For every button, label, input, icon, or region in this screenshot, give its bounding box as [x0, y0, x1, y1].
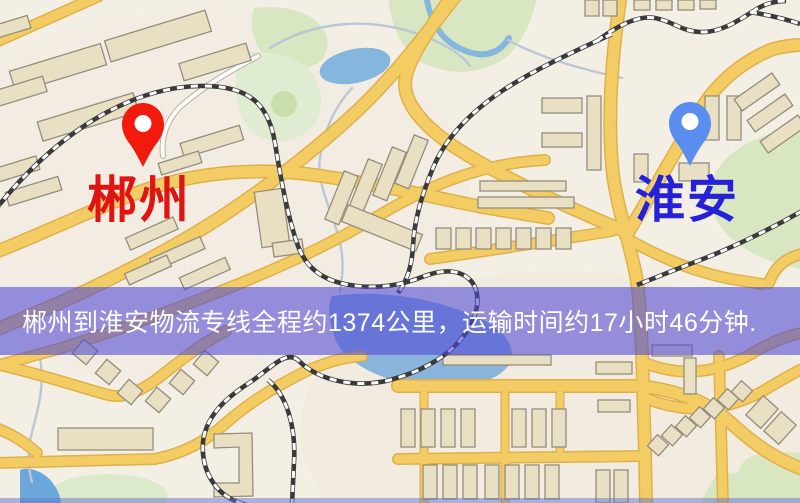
origin-marker[interactable] — [120, 102, 166, 168]
image-bottom-edge — [0, 498, 800, 503]
map-canvas[interactable] — [0, 0, 800, 503]
origin-label: 郴州 — [79, 174, 199, 226]
destination-marker[interactable] — [667, 101, 713, 167]
map-screenshot: 郴州 淮安 郴州到淮安物流专线全程约1374公里，运输时间约17小时46分钟. — [0, 0, 800, 503]
pin-hole — [135, 115, 152, 132]
map-pin-icon — [667, 101, 713, 167]
destination-pin-shape — [669, 102, 711, 166]
route-info-banner: 郴州到淮安物流专线全程约1374公里，运输时间约17小时46分钟. — [0, 287, 800, 355]
destination-label: 淮安 — [627, 174, 747, 226]
pin-hole — [682, 113, 699, 130]
map-pin-icon — [120, 102, 166, 168]
origin-pin-shape — [122, 103, 164, 167]
route-info-text: 郴州到淮安物流专线全程约1374公里，运输时间约17小时46分钟. — [0, 303, 757, 339]
